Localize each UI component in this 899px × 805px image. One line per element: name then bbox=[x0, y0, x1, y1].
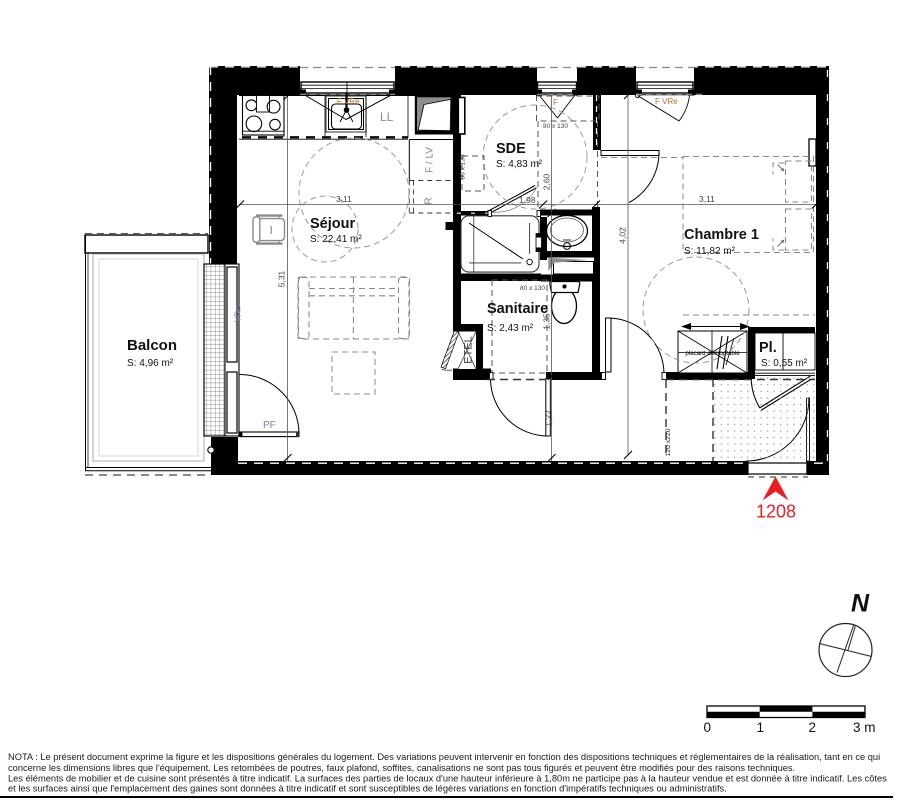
svg-text:S: 22,41 m²: S: 22,41 m² bbox=[310, 234, 362, 245]
svg-text:F / LV: F / LV bbox=[425, 147, 436, 173]
svg-text:Sanitaire: Sanitaire bbox=[487, 301, 548, 317]
svg-text:NOTA : Le présent document exp: NOTA : Le présent document exprime la fi… bbox=[8, 752, 880, 762]
svg-text:1208: 1208 bbox=[756, 502, 796, 522]
svg-text:1: 1 bbox=[757, 720, 765, 735]
svg-text:2: 2 bbox=[809, 720, 817, 735]
svg-text:0: 0 bbox=[704, 720, 712, 735]
svg-text:3,11: 3,11 bbox=[699, 194, 715, 204]
svg-text:LL: LL bbox=[380, 110, 394, 124]
svg-text:F: F bbox=[553, 98, 558, 107]
svg-text:S: 11,82 m²: S: 11,82 m² bbox=[684, 246, 736, 257]
svg-text:5,31: 5,31 bbox=[277, 270, 287, 287]
svg-text:F VRe: F VRe bbox=[655, 97, 678, 106]
svg-text:80 x 130: 80 x 130 bbox=[520, 285, 545, 292]
svg-text:Balcon: Balcon bbox=[127, 337, 177, 354]
svg-text:R: R bbox=[424, 197, 435, 204]
svg-text:1,22: 1,22 bbox=[544, 410, 554, 427]
svg-text:SDE: SDE bbox=[496, 141, 526, 157]
svg-text:80 x 130: 80 x 130 bbox=[460, 154, 467, 179]
svg-text:VRe: VRe bbox=[234, 306, 243, 322]
svg-text:80 x 130: 80 x 130 bbox=[543, 123, 568, 130]
svg-text:S: 4,96 m²: S: 4,96 m² bbox=[127, 358, 174, 369]
svg-text:S: 4,83 m²: S: 4,83 m² bbox=[496, 159, 543, 170]
svg-text:4,02: 4,02 bbox=[618, 227, 628, 244]
svg-text:Pl.: Pl. bbox=[759, 340, 777, 356]
svg-text:et les surfaces ainsi que l'em: et les surfaces ainsi que l'emplacement … bbox=[8, 784, 727, 794]
svg-text:Les éléments de mobilier et de: Les éléments de mobilier et de cuisine s… bbox=[8, 774, 887, 784]
svg-text:N: N bbox=[851, 590, 870, 618]
svg-text:PF: PF bbox=[263, 420, 276, 431]
svg-text:3 m: 3 m bbox=[853, 720, 876, 735]
svg-text:concerne les dimensions libres: concerne les dimensions libres que l'équ… bbox=[8, 763, 795, 773]
svg-text:placard démontable: placard démontable bbox=[685, 350, 740, 357]
svg-text:S: 0,55 m²: S: 0,55 m² bbox=[761, 358, 808, 369]
svg-text:3,11: 3,11 bbox=[336, 194, 352, 204]
svg-text:2,60: 2,60 bbox=[542, 173, 552, 190]
svg-text:S: 2,43 m²: S: 2,43 m² bbox=[487, 323, 534, 334]
svg-text:F VRe: F VRe bbox=[337, 97, 360, 106]
svg-text:Séjour: Séjour bbox=[310, 216, 355, 232]
svg-text:1,35: 1,35 bbox=[542, 313, 552, 330]
svg-text:Chambre 1: Chambre 1 bbox=[684, 227, 759, 243]
svg-text:120 x220: 120 x220 bbox=[665, 428, 672, 456]
svg-text:ETEL: ETEL bbox=[463, 336, 475, 364]
svg-text:1,98: 1,98 bbox=[519, 195, 536, 205]
